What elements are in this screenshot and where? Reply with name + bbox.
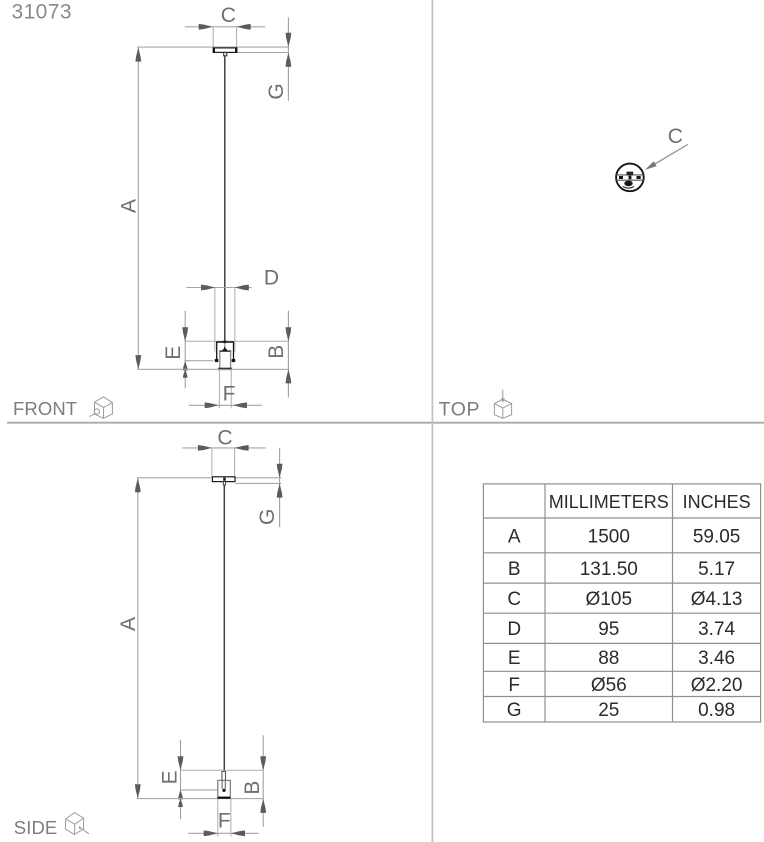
svg-text:F: F: [218, 810, 231, 833]
svg-text:E: E: [158, 770, 181, 784]
svg-text:C: C: [217, 426, 232, 449]
svg-text:B: B: [265, 345, 288, 359]
svg-text:C: C: [668, 125, 683, 148]
svg-text:G: G: [265, 83, 288, 99]
svg-text:0.98: 0.98: [698, 700, 735, 721]
svg-text:B: B: [241, 781, 264, 795]
svg-text:Ø2.20: Ø2.20: [691, 675, 743, 696]
svg-text:31073: 31073: [12, 1, 72, 24]
svg-text:FRONT: FRONT: [13, 398, 77, 419]
svg-text:3.74: 3.74: [698, 619, 735, 640]
svg-text:88: 88: [598, 648, 619, 669]
svg-text:Ø56: Ø56: [591, 675, 627, 696]
svg-text:A: A: [118, 199, 141, 213]
svg-text:B: B: [508, 559, 521, 580]
svg-text:A: A: [117, 617, 140, 631]
svg-text:3.46: 3.46: [698, 648, 735, 669]
svg-text:131.50: 131.50: [580, 559, 638, 580]
svg-text:5.17: 5.17: [698, 559, 735, 580]
svg-text:G: G: [256, 509, 279, 525]
svg-text:E: E: [162, 346, 185, 360]
svg-text:1500: 1500: [588, 526, 630, 547]
svg-text:INCHES: INCHES: [683, 492, 751, 512]
svg-text:SIDE: SIDE: [14, 817, 58, 838]
svg-text:C: C: [221, 4, 236, 27]
svg-text:Ø105: Ø105: [586, 589, 632, 610]
svg-text:E: E: [508, 648, 521, 669]
svg-text:25: 25: [598, 700, 619, 721]
svg-text:95: 95: [598, 619, 619, 640]
svg-text:C: C: [507, 589, 521, 610]
svg-text:D: D: [507, 619, 521, 640]
svg-text:G: G: [507, 700, 522, 721]
svg-text:MILLIMETERS: MILLIMETERS: [549, 492, 669, 512]
svg-text:D: D: [264, 266, 279, 289]
svg-text:TOP: TOP: [439, 398, 481, 420]
svg-text:F: F: [223, 382, 236, 405]
svg-text:F: F: [508, 675, 520, 696]
svg-text:59.05: 59.05: [693, 526, 741, 547]
svg-text:Ø4.13: Ø4.13: [691, 589, 743, 610]
svg-text:A: A: [508, 526, 521, 547]
